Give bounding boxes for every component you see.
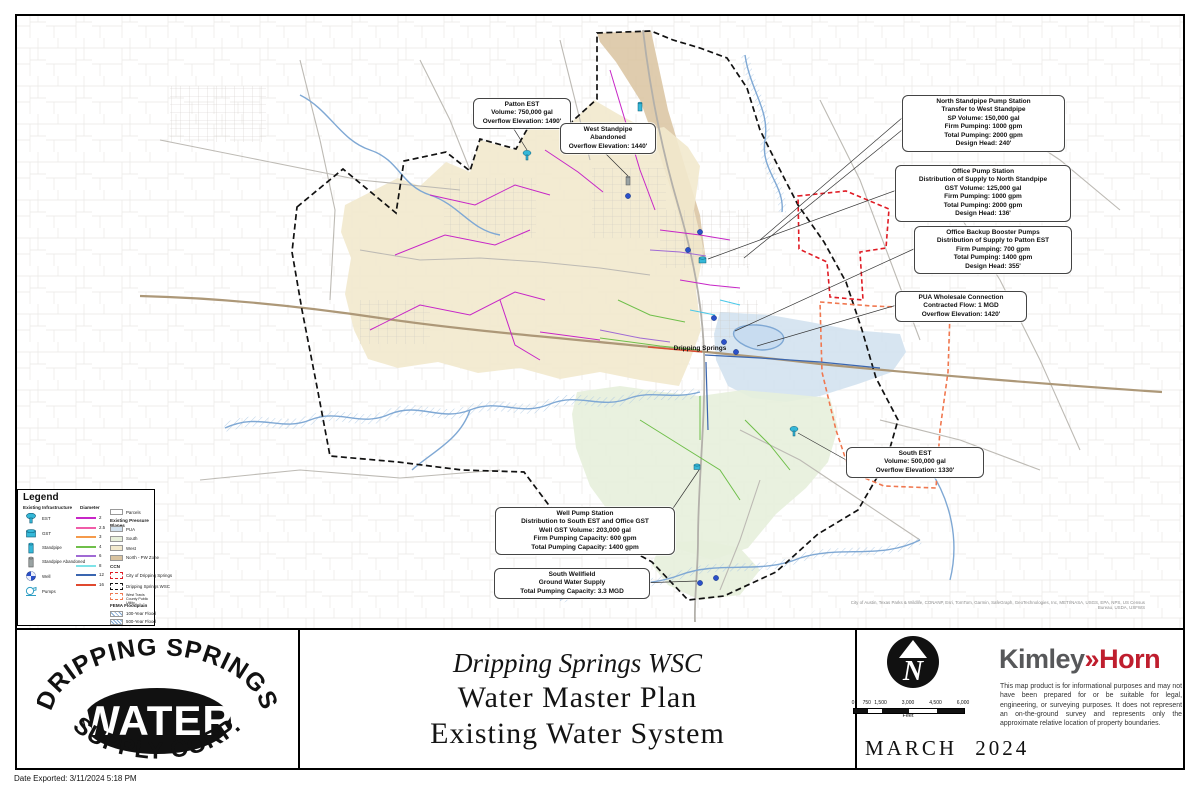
legend-item-city-of-dripping-springs: City of Dripping Springs [126,573,172,578]
scale-tick-0: 0 [852,700,855,706]
north-standpipe-icon [638,102,642,111]
diameter-label-8: 8 [99,563,101,568]
title-bar: DRIPPING SPRINGS WATER SUPPLY CORP. Drip… [15,628,1185,770]
date-exported: Date Exported: 3/11/2024 5:18 PM [14,774,137,783]
dripping-springs-wsc-logo: DRIPPING SPRINGS WATER SUPPLY CORP. [37,639,277,761]
legend-item-standpipe: Standpipe [42,545,62,550]
fema-swatch-100yr [110,611,123,617]
pumps-icon [26,587,36,595]
town-label: Dripping Springs [674,345,727,352]
diameter-label-16: 16 [99,582,104,587]
est-icon [27,513,36,523]
kimley-text: Kimley [999,644,1085,674]
plane-swatch-west [110,545,123,551]
legend-item-gst: GST [42,531,51,536]
north-letter: N [902,656,925,687]
disclaimer-text: This map product is for informational pu… [1000,682,1182,729]
legend-item-well: Well [42,574,50,579]
ccn-swatch-city [110,572,123,579]
sheet-title: Water Master Plan [458,680,698,716]
diameter-label-2: 2 [99,515,101,520]
legend-item-est: EST [42,516,51,521]
legend-item-100-year-flood: 100-Year Flood [126,611,156,616]
parcels-swatch [110,509,123,515]
callout-south-wellfield: South Wellfield Ground Water Supply Tota… [494,568,650,599]
standpipe-icon [29,543,33,553]
horn-text: Horn [1099,644,1160,674]
title-box: Dripping Springs WSC Water Master Plan E… [300,630,855,770]
north-arrow: N [885,634,941,690]
scale-tick-750: 750 [863,700,871,706]
diameter-line-8 [76,565,96,567]
sheet-subtitle: Dripping Springs WSC [453,648,702,679]
map-sheet: Dripping Springs Patton EST Volume: 750,… [0,0,1200,800]
kimley-horn-chevrons: » [1085,644,1100,674]
diameter-line-3 [76,536,96,538]
diameter-line-2 [76,517,96,519]
sheet-date: MARCH 2024 [865,736,1029,761]
diameter-line-4 [76,546,96,548]
scale-bar: 0 750 1,500 3,000 4,500 6,000 Feet [853,700,969,722]
diameter-label-2-5: 2.5 [99,525,105,530]
diameter-label-3: 3 [99,534,101,539]
legend-item-pua: PUA [126,527,135,532]
fema-header: FEMA Floodplain [110,603,147,608]
callout-office-backup-booster: Office Backup Booster Pumps Distribution… [914,226,1072,274]
legend-item-parcels: Parcels [126,510,141,515]
scale-unit: Feet [853,713,963,719]
info-box: N 0 750 1,500 3,000 4,500 6,000 Feet MAR… [855,630,1185,770]
scale-tick-3000: 3,000 [902,700,915,706]
ccn-swatch-wsc [110,583,123,590]
legend-title: Legend [23,492,59,503]
standpipe-abandoned-icon [29,557,33,567]
legend-item-500-year-flood: 500-Year Flood [126,619,156,624]
callout-west-standpipe: West Standpipe Abandoned Overflow Elevat… [560,123,656,154]
legend-panel: Legend Existing Infrastructure Diameter … [17,489,155,626]
diameter-line-6 [76,555,96,557]
map-attribution: City of Austin, Texas Parks & Wildlife, … [840,600,1145,610]
logo-box: DRIPPING SPRINGS WATER SUPPLY CORP. [15,630,300,770]
scale-tick-1500: 1,500 [874,700,887,706]
scale-tick-4500: 4,500 [929,700,942,706]
scale-tick-6000: 6,000 [957,700,970,706]
diameter-line-2-5 [76,527,96,529]
callout-south-est: South EST Volume: 500,000 gal Overflow E… [846,447,984,478]
fema-swatch-500yr [110,619,123,625]
legend-item-west: West [126,546,136,551]
legend-item-pumps: Pumps [42,589,56,594]
legend-diameter-header: Diameter [80,505,100,510]
west-standpipe-icon [626,176,630,185]
plane-swatch-north-pw [110,555,123,561]
legend-item-north-pw-zone: North - PW Zone [126,555,159,560]
legend-item-standpipe-abandoned: Standpipe Abandoned [42,559,85,564]
diameter-line-16 [76,584,96,586]
gst-icon [27,530,36,538]
well-gst-icon [694,464,700,470]
diameter-label-4: 4 [99,544,101,549]
diameter-line-12 [76,574,96,576]
callout-north-standpipe: North Standpipe Pump Station Transfer to… [902,95,1065,152]
diameter-label-12: 12 [99,572,104,577]
callout-patton-est: Patton EST Volume: 750,000 gal Overflow … [473,98,571,129]
sheet-title-2: Existing Water System [430,716,725,752]
callout-well-pump-station: Well Pump Station Distribution to South … [495,507,675,555]
office-gst-icon [699,257,706,263]
kimley-horn-logo: Kimley»Horn [999,644,1160,675]
callout-pua-wholesale: PUA Wholesale Connection Contracted Flow… [895,291,1027,322]
legend-item-dripping-springs-wsc: Dripping Springs WSC [126,584,170,589]
well-icon [27,572,36,581]
callout-office-pump-station: Office Pump Station Distribution of Supp… [895,165,1071,222]
legend-item-south: South [126,536,137,541]
ccn-swatch-wtcpu [110,593,123,600]
legend-infrastructure-icons [25,513,39,613]
legend-infrastructure-header: Existing Infrastructure [23,505,72,510]
plane-swatch-south [110,536,123,542]
ccn-header: CCN [110,564,120,569]
plane-swatch-pua [110,526,123,532]
diameter-label-6: 6 [99,553,101,558]
